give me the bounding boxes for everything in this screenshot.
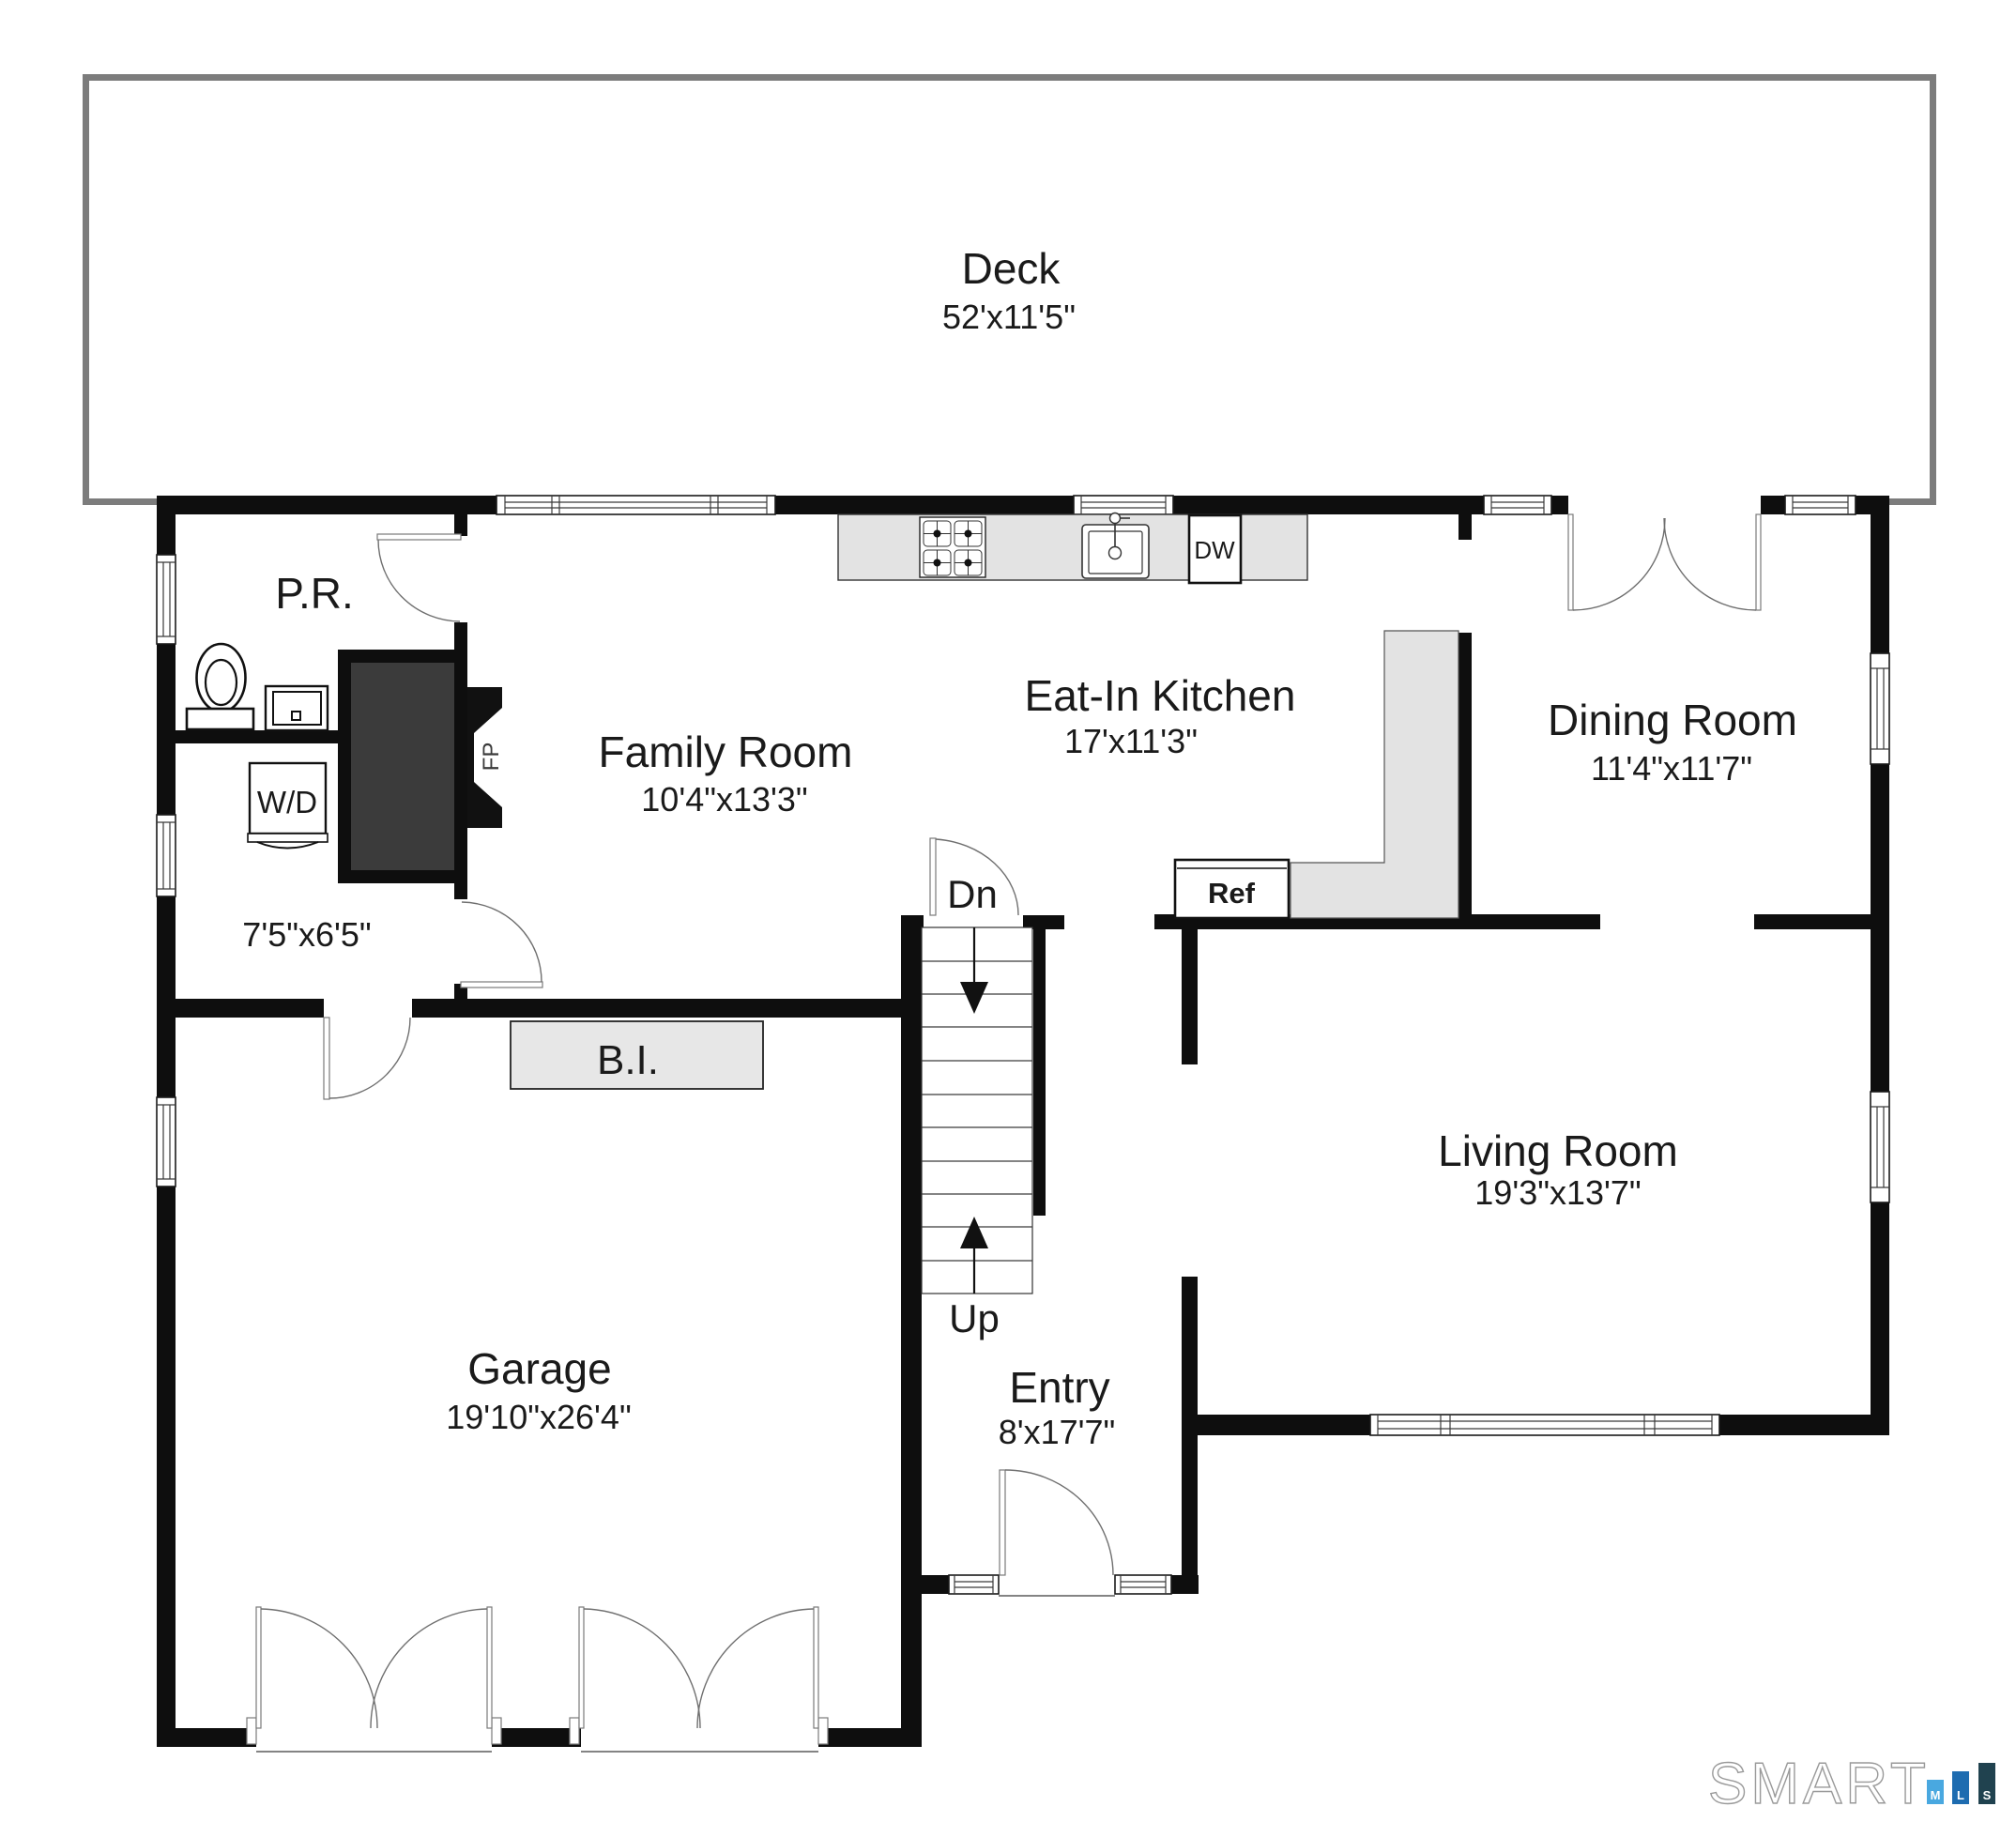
svg-text:Garage: Garage (467, 1344, 611, 1393)
svg-text:SMART: SMART (1708, 1752, 1930, 1816)
svg-text:Dn: Dn (947, 872, 998, 916)
svg-text:W/D: W/D (257, 785, 317, 819)
svg-text:11'4"x11'7": 11'4"x11'7" (1591, 749, 1752, 788)
svg-text:M: M (1931, 1788, 1941, 1802)
svg-text:Family Room: Family Room (599, 727, 853, 776)
svg-text:7'5"x6'5": 7'5"x6'5" (242, 915, 371, 954)
svg-text:52'x11'5": 52'x11'5" (942, 298, 1076, 336)
svg-text:19'3"x13'7": 19'3"x13'7" (1474, 1173, 1641, 1212)
svg-text:19'10"x26'4": 19'10"x26'4" (446, 1398, 631, 1436)
svg-text:FP: FP (479, 743, 504, 772)
svg-text:B.I.: B.I. (597, 1037, 659, 1083)
svg-text:Eat-In Kitchen: Eat-In Kitchen (1025, 671, 1296, 720)
svg-text:DW: DW (1194, 536, 1235, 564)
svg-text:Living Room: Living Room (1438, 1126, 1678, 1175)
svg-text:S: S (1983, 1788, 1992, 1802)
svg-text:L: L (1957, 1788, 1964, 1802)
svg-text:Deck: Deck (962, 244, 1061, 293)
svg-text:Up: Up (949, 1296, 1000, 1340)
svg-text:Ref: Ref (1208, 877, 1256, 910)
svg-text:17'x11'3": 17'x11'3" (1064, 722, 1198, 760)
svg-text:10'4"x13'3": 10'4"x13'3" (641, 780, 807, 819)
svg-text:Entry: Entry (1009, 1363, 1109, 1412)
svg-text:Dining Room: Dining Room (1548, 696, 1797, 744)
svg-text:P.R.: P.R. (275, 569, 354, 618)
svg-text:8'x17'7": 8'x17'7" (999, 1413, 1116, 1451)
